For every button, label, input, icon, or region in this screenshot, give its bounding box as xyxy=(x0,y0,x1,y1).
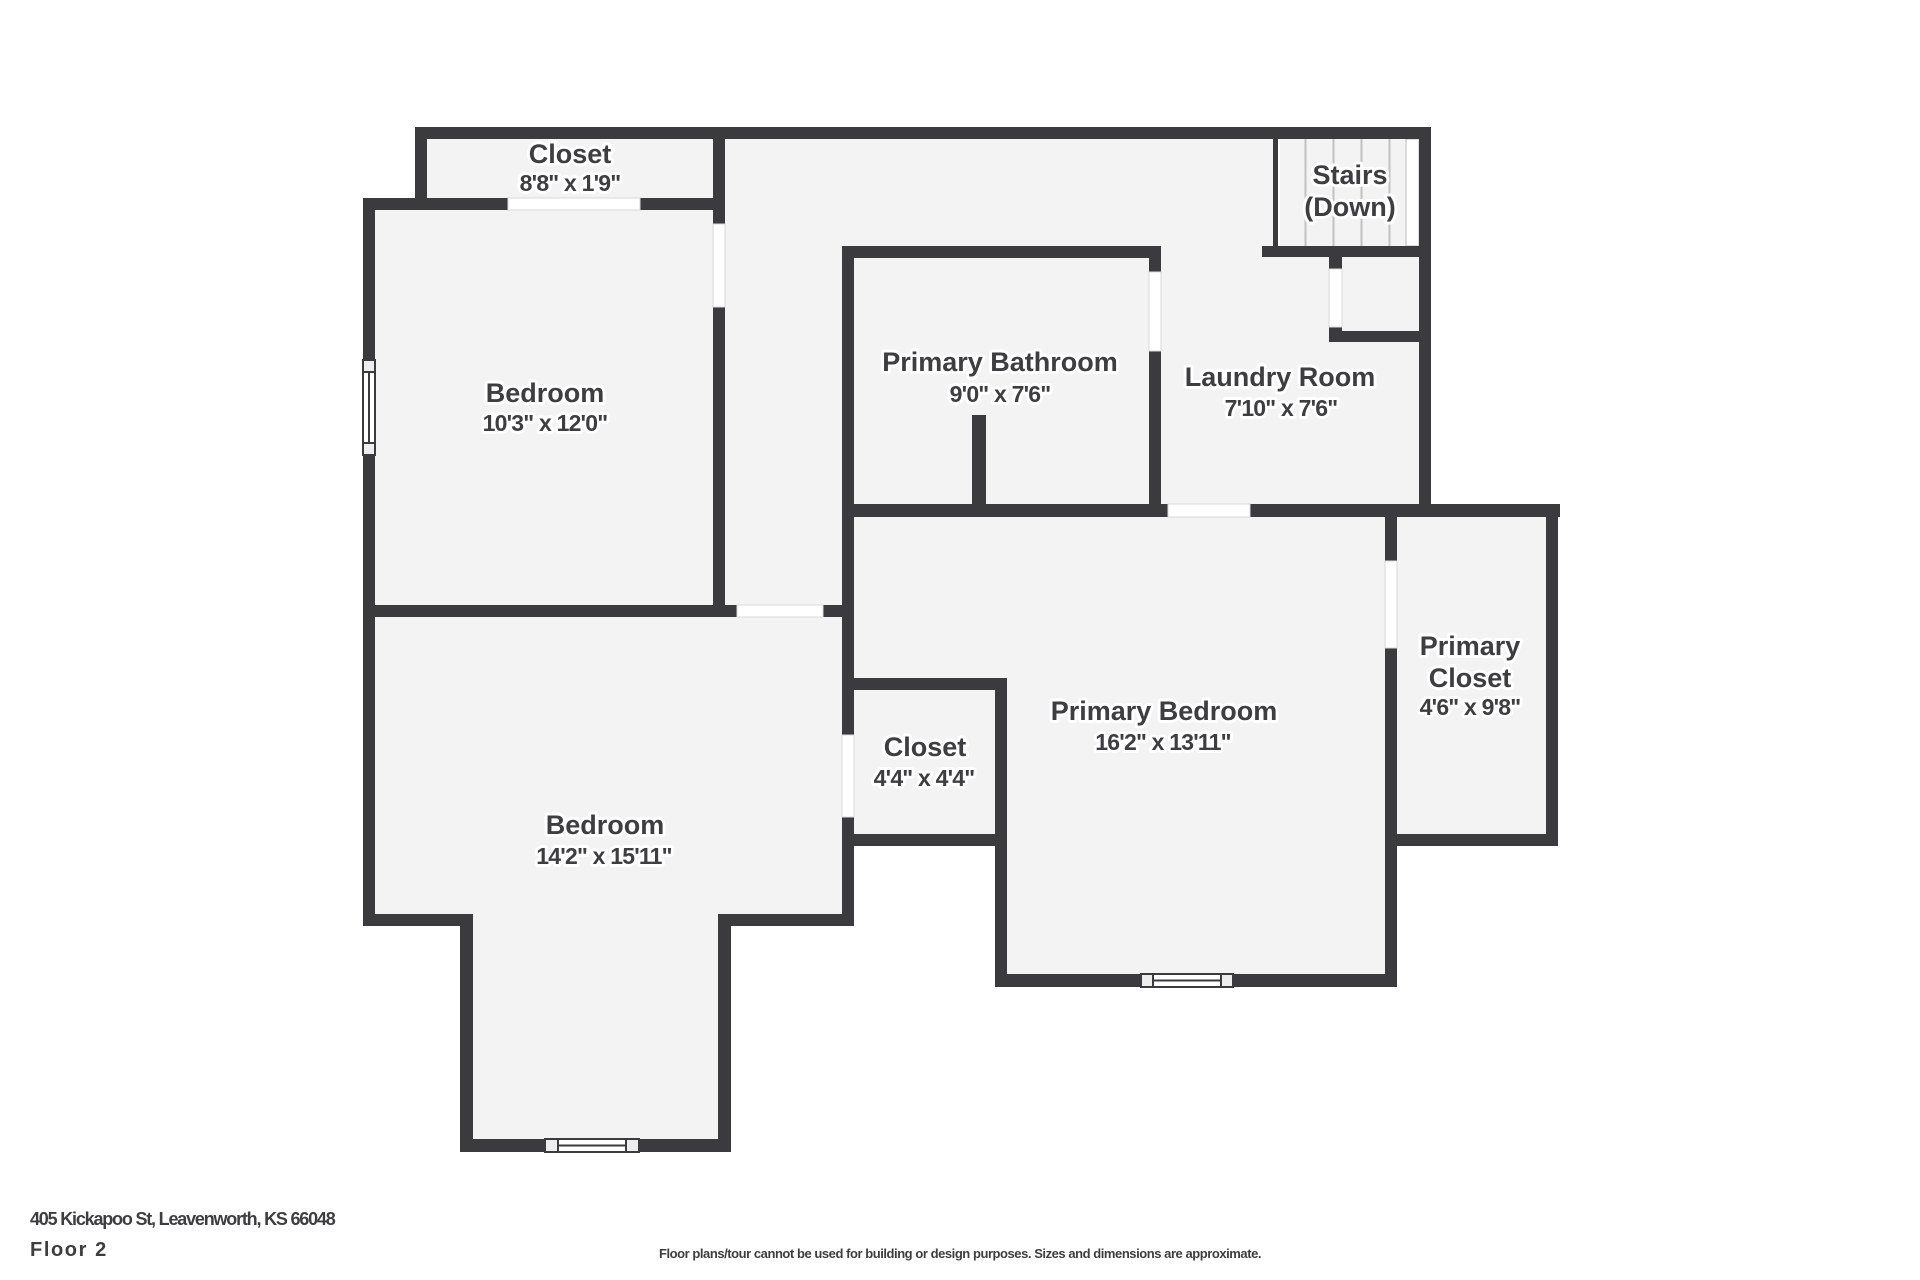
svg-text:4'4" x 4'4": 4'4" x 4'4" xyxy=(874,765,975,791)
svg-text:Bedroom: Bedroom xyxy=(546,810,665,840)
svg-text:Closet: Closet xyxy=(884,732,967,762)
svg-text:Laundry Room: Laundry Room xyxy=(1185,362,1376,392)
svg-text:Bedroom: Bedroom xyxy=(486,378,605,408)
svg-text:Closet: Closet xyxy=(529,139,612,169)
svg-text:10'3" x 12'0": 10'3" x 12'0" xyxy=(483,410,608,436)
svg-text:Primary: Primary xyxy=(1420,631,1521,661)
svg-text:Floor 2: Floor 2 xyxy=(30,1239,108,1261)
svg-text:Primary Bathroom: Primary Bathroom xyxy=(882,347,1118,377)
svg-text:7'10" x 7'6": 7'10" x 7'6" xyxy=(1225,395,1338,421)
svg-text:8'8" x 1'9": 8'8" x 1'9" xyxy=(520,170,621,196)
svg-text:405 Kickapoo St, Leavenworth,: 405 Kickapoo St, Leavenworth, KS 66048 xyxy=(30,1209,336,1229)
svg-text:Primary Bedroom: Primary Bedroom xyxy=(1051,696,1278,726)
svg-text:16'2" x 13'11": 16'2" x 13'11" xyxy=(1095,729,1230,755)
svg-text:Stairs: Stairs xyxy=(1312,160,1387,190)
svg-text:Floor plans/tour cannot be use: Floor plans/tour cannot be used for buil… xyxy=(659,1246,1261,1261)
svg-text:14'2" x 15'11": 14'2" x 15'11" xyxy=(536,843,671,869)
svg-text:(Down): (Down) xyxy=(1304,192,1395,222)
svg-text:9'0" x 7'6": 9'0" x 7'6" xyxy=(950,381,1051,407)
svg-text:4'6" x 9'8": 4'6" x 9'8" xyxy=(1420,694,1521,720)
svg-text:Closet: Closet xyxy=(1429,663,1512,693)
